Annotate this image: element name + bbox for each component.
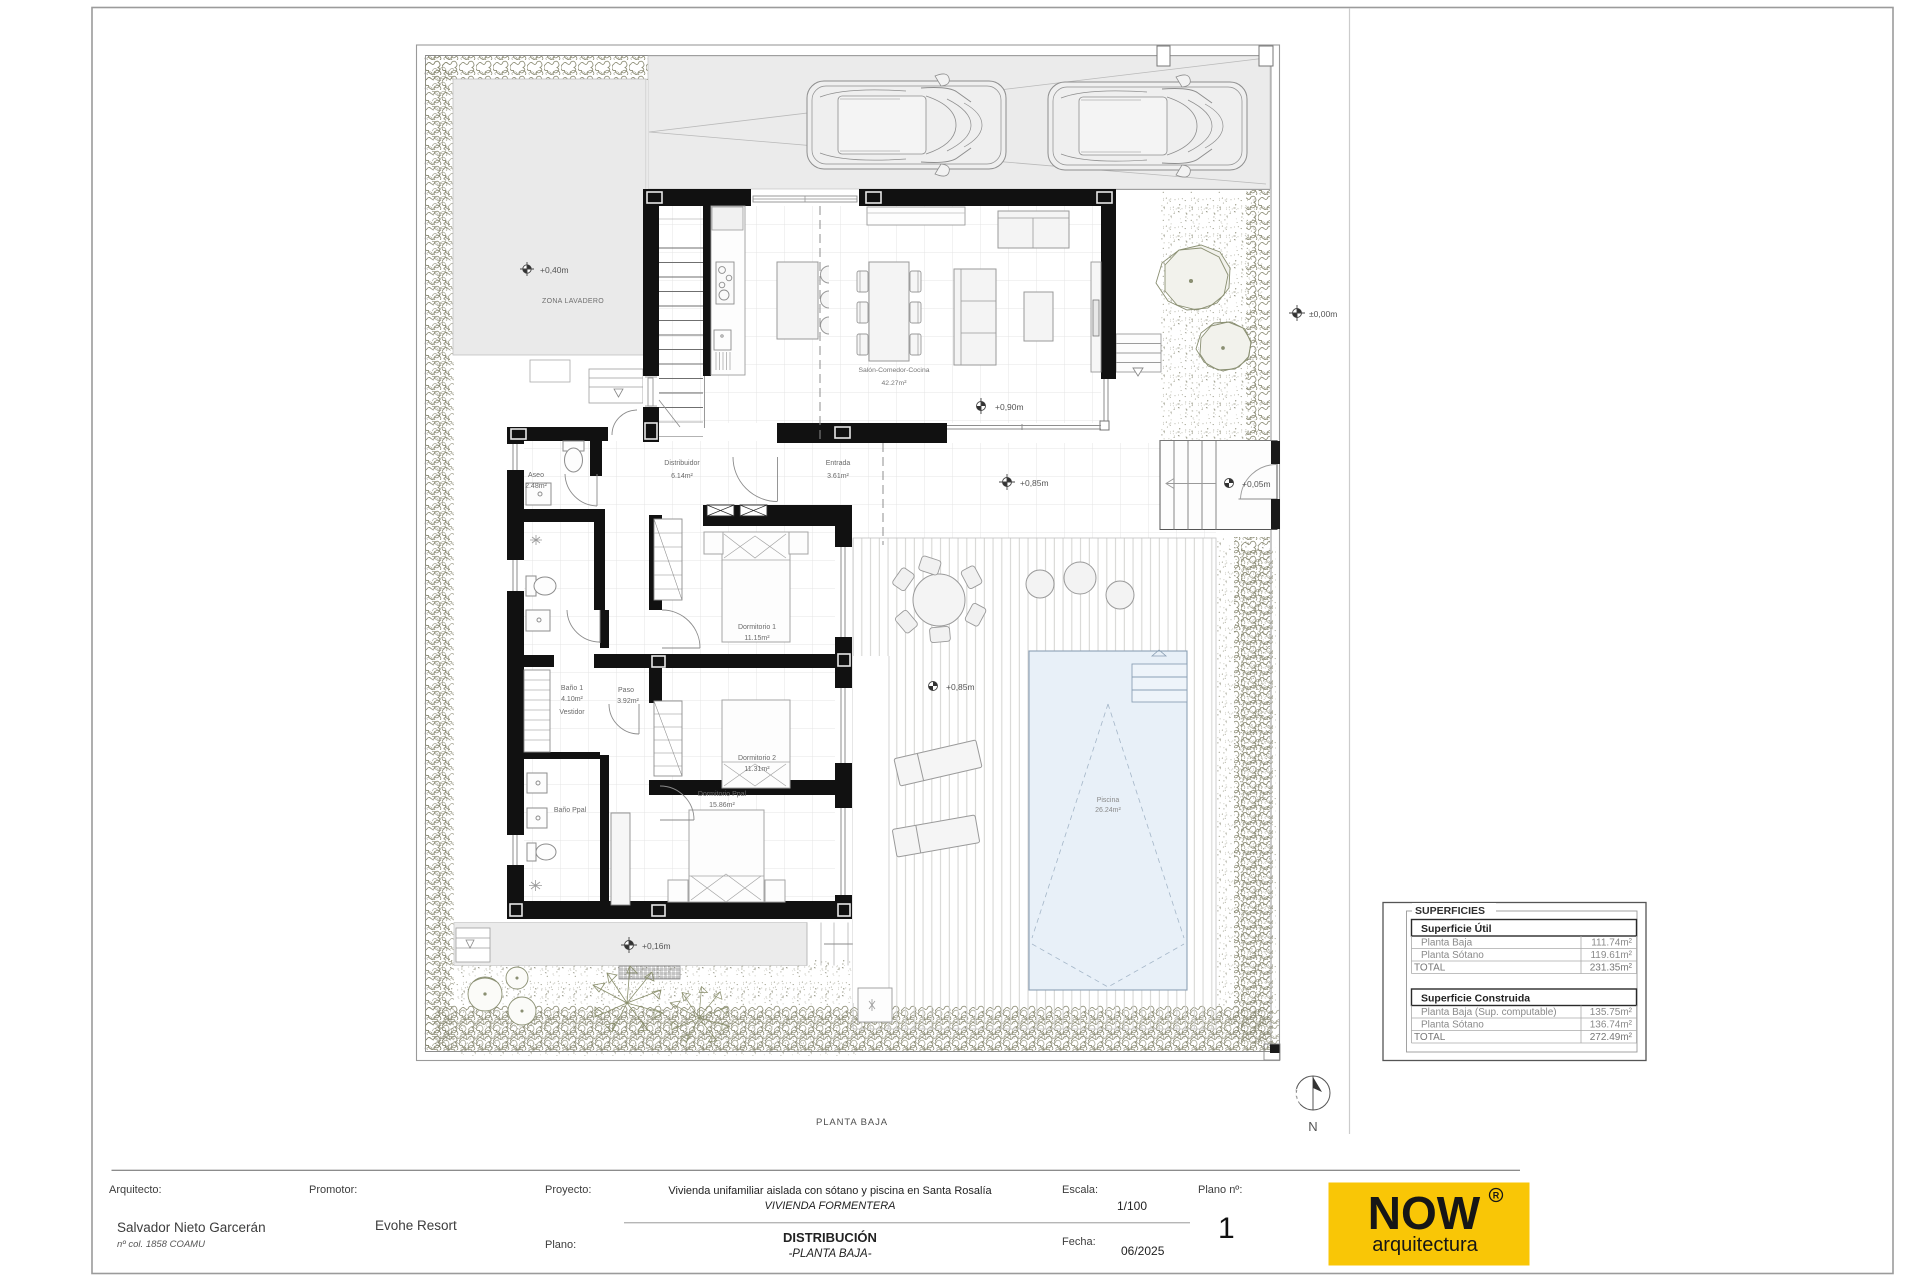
svg-text:1: 1 [1218, 1212, 1235, 1245]
svg-text:nº col. 1858 COAMU: nº col. 1858 COAMU [117, 1239, 205, 1250]
svg-text:SUPERFICIES: SUPERFICIES [1415, 905, 1485, 917]
svg-text:Proyecto:: Proyecto: [545, 1184, 591, 1196]
svg-text:11.31m²: 11.31m² [744, 766, 770, 773]
svg-text:135.75m²: 135.75m² [1590, 1007, 1633, 1018]
svg-text:TOTAL: TOTAL [1414, 963, 1446, 974]
svg-text:Entrada: Entrada [826, 460, 851, 467]
svg-text:Escala:: Escala: [1062, 1184, 1098, 1196]
svg-text:Plano nº:: Plano nº: [1198, 1184, 1242, 1196]
svg-text:Planta Sótano: Planta Sótano [1421, 1020, 1484, 1031]
svg-text:Baño 1: Baño 1 [561, 685, 583, 692]
svg-text:Piscina: Piscina [1097, 797, 1120, 804]
svg-text:1/100: 1/100 [1117, 1199, 1147, 1213]
svg-text:+0,16m: +0,16m [642, 941, 671, 951]
svg-text:06/2025: 06/2025 [1121, 1244, 1165, 1258]
svg-text:15.86m²: 15.86m² [709, 802, 735, 809]
svg-text:Plano:: Plano: [545, 1239, 576, 1251]
svg-text:Salvador Nieto Garcerán: Salvador Nieto Garcerán [117, 1220, 266, 1235]
svg-text:Vestidor: Vestidor [559, 709, 585, 716]
svg-text:VIVIENDA FORMENTERA: VIVIENDA FORMENTERA [765, 1200, 896, 1212]
svg-text:Salón-Comedor-Cocina: Salón-Comedor-Cocina [858, 367, 929, 374]
svg-text:Distribuidor: Distribuidor [664, 460, 700, 467]
svg-text:2.48m²: 2.48m² [525, 483, 547, 490]
svg-text:272.49m²: 272.49m² [1590, 1032, 1633, 1043]
svg-text:±0,00m: ±0,00m [1309, 309, 1337, 319]
svg-text:3.61m²: 3.61m² [827, 473, 849, 480]
svg-text:R: R [1493, 1191, 1500, 1201]
svg-text:Planta Sótano: Planta Sótano [1421, 950, 1484, 961]
svg-text:Paso: Paso [618, 687, 634, 694]
svg-text:+0,05m: +0,05m [1242, 479, 1271, 489]
svg-text:Baño Ppal: Baño Ppal [554, 807, 587, 814]
svg-text:Vivienda unifamiliar aislada c: Vivienda unifamiliar aislada con sótano … [668, 1185, 992, 1197]
svg-text:+0,40m: +0,40m [540, 265, 569, 275]
svg-text:Dormitorio 1: Dormitorio 1 [738, 624, 776, 631]
svg-text:N: N [1308, 1119, 1317, 1134]
svg-text:+0,85m: +0,85m [946, 682, 975, 692]
svg-text:4.10m²: 4.10m² [561, 696, 583, 703]
svg-text:Dormitorio Ppal: Dormitorio Ppal [698, 791, 747, 798]
svg-text:arquitectura: arquitectura [1372, 1234, 1478, 1256]
svg-text:26.24m²: 26.24m² [1095, 807, 1121, 814]
svg-text:Fecha:: Fecha: [1062, 1236, 1096, 1248]
svg-text:Superficie Construida: Superficie Construida [1421, 993, 1530, 1005]
svg-text:NOW: NOW [1368, 1187, 1481, 1239]
svg-text:119.61m²: 119.61m² [1590, 950, 1632, 961]
svg-text:-PLANTA BAJA-: -PLANTA BAJA- [788, 1248, 871, 1260]
svg-text:Evohe Resort: Evohe Resort [375, 1218, 457, 1233]
svg-text:Arquitecto:: Arquitecto: [109, 1184, 162, 1196]
svg-text:PLANTA BAJA: PLANTA BAJA [816, 1117, 888, 1128]
svg-text:42.27m²: 42.27m² [882, 380, 908, 387]
svg-text:+0,90m: +0,90m [995, 402, 1024, 412]
svg-text:Dormitorio 2: Dormitorio 2 [738, 755, 776, 762]
svg-text:Planta Baja (Sup. computable): Planta Baja (Sup. computable) [1421, 1007, 1557, 1018]
svg-text:Promotor:: Promotor: [309, 1184, 357, 1196]
svg-text:DISTRIBUCIÓN: DISTRIBUCIÓN [783, 1230, 877, 1245]
svg-text:ZONA LAVADERO: ZONA LAVADERO [542, 298, 604, 305]
svg-text:111.74m²: 111.74m² [1591, 938, 1632, 949]
svg-text:6.14m²: 6.14m² [671, 473, 693, 480]
svg-text:Superficie Útil: Superficie Útil [1421, 922, 1492, 935]
svg-text:TOTAL: TOTAL [1414, 1032, 1446, 1043]
svg-text:136.74m²: 136.74m² [1590, 1020, 1633, 1031]
svg-text:Planta Baja: Planta Baja [1421, 938, 1473, 949]
svg-text:3.92m²: 3.92m² [617, 698, 639, 705]
svg-text:231.35m²: 231.35m² [1590, 963, 1633, 974]
svg-text:Aseo: Aseo [528, 472, 544, 479]
svg-text:+0,85m: +0,85m [1020, 478, 1049, 488]
svg-text:11.15m²: 11.15m² [744, 635, 770, 642]
